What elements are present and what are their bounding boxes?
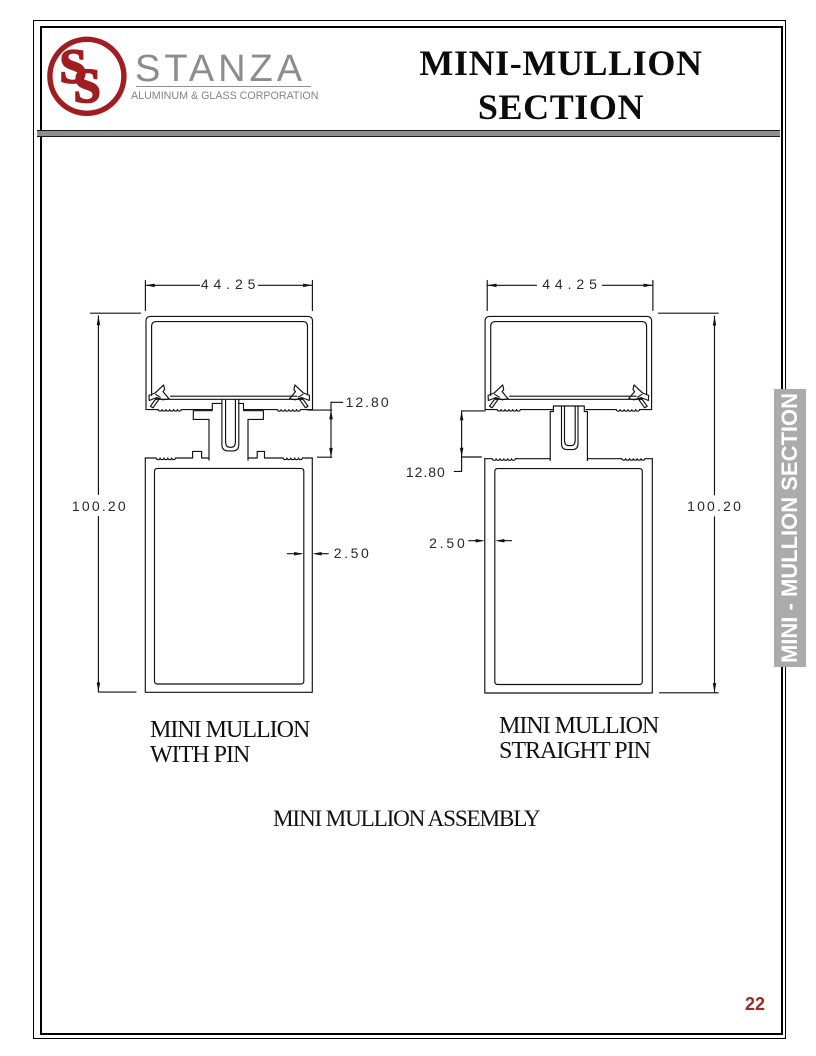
svg-text:2.50: 2.50: [334, 545, 372, 561]
svg-text:44.25: 44.25: [542, 276, 602, 292]
svg-text:12.80: 12.80: [346, 394, 391, 410]
svg-text:44.25: 44.25: [201, 276, 261, 292]
svg-text:100.20: 100.20: [72, 498, 128, 514]
svg-text:100.20: 100.20: [687, 498, 743, 514]
svg-text:2.50: 2.50: [429, 535, 467, 551]
svg-text:12.80: 12.80: [406, 464, 446, 480]
